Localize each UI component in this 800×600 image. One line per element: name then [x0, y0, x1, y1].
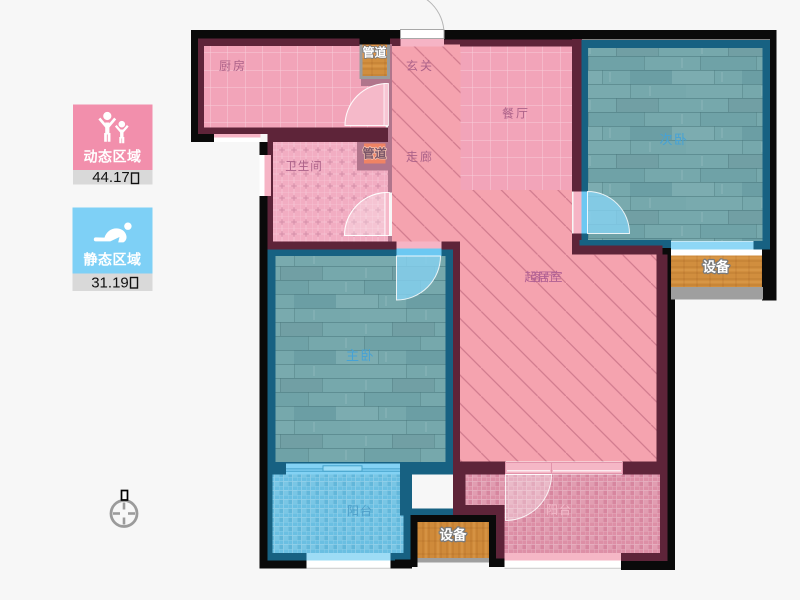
svg-text:设备: 设备	[440, 527, 467, 543]
svg-text:31.19: 31.19	[91, 275, 129, 292]
svg-text:动态区域: 动态区域	[84, 149, 142, 165]
svg-text:管道: 管道	[362, 45, 386, 60]
svg-text:阳台: 阳台	[546, 502, 572, 517]
svg-text:主卧: 主卧	[346, 348, 375, 363]
svg-text:客厅: 客厅	[531, 269, 557, 284]
svg-text:44.17: 44.17	[92, 169, 130, 186]
svg-text:静态区域: 静态区域	[84, 252, 142, 268]
svg-text:设备: 设备	[703, 259, 731, 275]
svg-text:次卧: 次卧	[659, 132, 688, 147]
svg-text:卫生间: 卫生间	[285, 159, 323, 173]
svg-text:走廊: 走廊	[406, 149, 434, 164]
svg-text:餐厅: 餐厅	[502, 106, 530, 121]
svg-text:管道: 管道	[362, 146, 386, 161]
svg-text:玄关: 玄关	[406, 58, 434, 73]
svg-text:厨房: 厨房	[219, 58, 247, 73]
svg-text:阳台: 阳台	[347, 503, 373, 518]
